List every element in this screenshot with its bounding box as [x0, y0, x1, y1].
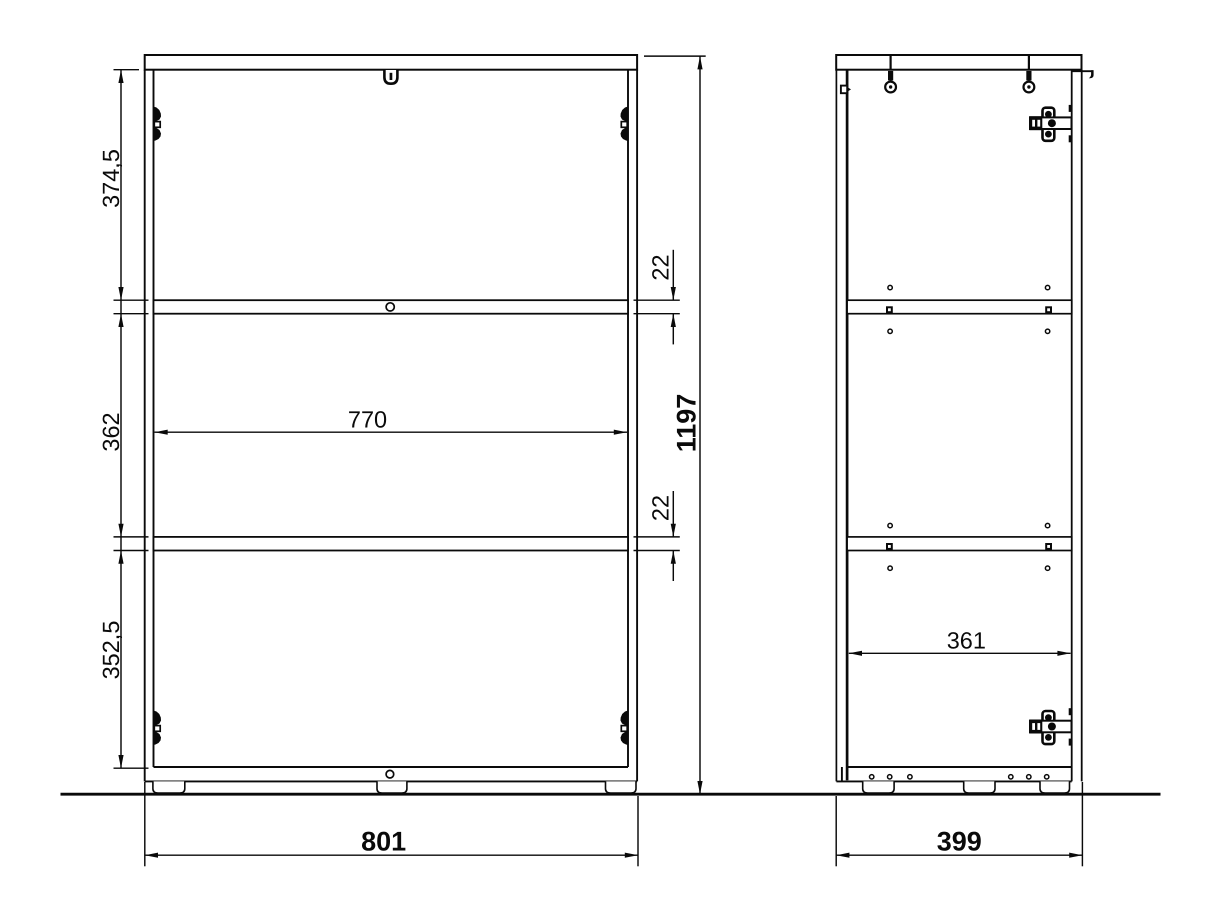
svg-text:362: 362	[98, 412, 124, 451]
svg-text:361: 361	[947, 628, 986, 654]
svg-text:352,5: 352,5	[98, 621, 124, 680]
svg-text:374,5: 374,5	[98, 149, 124, 208]
svg-text:770: 770	[348, 407, 387, 433]
svg-text:22: 22	[648, 254, 674, 280]
svg-text:399: 399	[937, 827, 982, 857]
svg-text:1197: 1197	[672, 394, 702, 453]
svg-text:22: 22	[648, 495, 674, 521]
svg-text:801: 801	[361, 827, 406, 857]
